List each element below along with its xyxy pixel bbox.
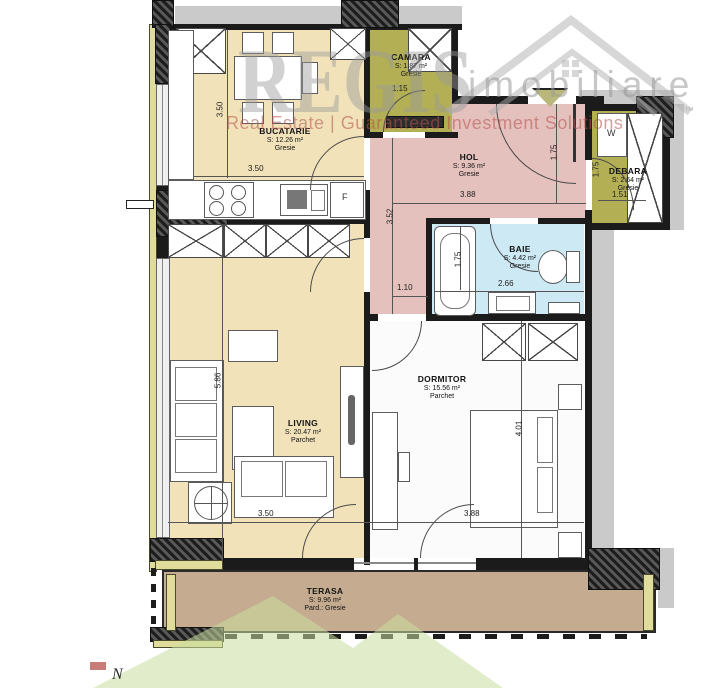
hatch-terrace-left	[150, 538, 224, 562]
stove-burner	[209, 185, 224, 200]
wall-bottom-right	[476, 558, 592, 570]
nightstand	[558, 532, 582, 558]
wall-dorm-top-left	[370, 314, 378, 321]
room-name: DEBARA	[592, 166, 664, 177]
olive-terrace-inner-left	[166, 574, 176, 631]
room-area: S: 9.36 m²	[424, 163, 514, 172]
hall-wardrobe-xbox	[168, 224, 224, 258]
pipe-stub	[126, 200, 154, 209]
terrace-railing-left	[151, 568, 156, 626]
north-indicator: N	[112, 666, 123, 684]
dim-living-v: 5.86	[213, 373, 222, 389]
kitchen-chair	[272, 102, 294, 124]
wall-bottom-left	[222, 558, 354, 570]
dim-kitchen-h: 3.50	[248, 164, 264, 173]
sink-basin	[496, 296, 530, 311]
dim-line	[194, 176, 364, 177]
wall-baie-left	[426, 224, 432, 320]
hatch-top-center	[341, 0, 399, 28]
entrance-door-leaf	[573, 104, 576, 162]
dim-line	[227, 30, 228, 178]
pillow	[537, 467, 553, 513]
kitchen-cabinet-xbox	[330, 28, 366, 60]
dim-line	[521, 321, 522, 558]
room-name: LIVING	[258, 418, 348, 429]
room-label-dormitor: DORMITOR S: 15.56 m² Parchet	[392, 374, 492, 402]
dim-hol-pass: 1.10	[397, 283, 413, 292]
fridge-label: F	[342, 192, 348, 202]
room-floor-type: Parchet	[392, 393, 492, 402]
dim-line	[392, 296, 428, 297]
exterior-strip-bottom-right	[658, 548, 674, 608]
room-floor-type: Gresie	[482, 263, 558, 272]
dorm-wardrobe-xbox	[482, 323, 526, 361]
room-area: S: 12.26 m²	[230, 137, 340, 146]
tv-icon	[348, 395, 355, 445]
dim-kitchen-v: 3.50	[215, 102, 224, 118]
wall-bottom-mullion	[414, 558, 418, 570]
dim-line	[392, 138, 393, 314]
hall-wardrobe-xbox	[224, 224, 266, 258]
kitchen-table	[234, 56, 302, 100]
terrace-railing	[225, 634, 647, 639]
dim-baie-v: 1.75	[453, 252, 462, 268]
wall-spine-lower	[364, 292, 370, 565]
room-floor-type: Gresie	[230, 145, 340, 154]
dorm-wardrobe-xbox	[528, 323, 578, 361]
bath-mat	[548, 302, 580, 314]
wall-spine-upper	[364, 224, 370, 238]
dim-hol-v: 3.52	[385, 209, 394, 225]
dim-line	[434, 291, 584, 292]
room-label-terasa: TERASA S: 9.96 m² Pard.: Gresie	[270, 586, 380, 614]
kitchen-chair	[242, 102, 264, 124]
stove-burner	[209, 201, 224, 216]
dim-dorm-w: 3.88	[464, 509, 480, 518]
wall-baie-top-right	[538, 218, 590, 224]
room-area: S: 2.64 m²	[592, 177, 664, 186]
sofa-cushion	[175, 367, 217, 401]
room-label-debara: DEBARA S: 2.64 m² Gresie	[592, 166, 664, 194]
living-bench	[228, 330, 278, 362]
stove-burner	[231, 185, 246, 200]
stove-burner	[231, 201, 246, 216]
wall-east-lower	[585, 210, 592, 570]
wall-baie-top-left	[426, 218, 490, 224]
sink-drainer	[311, 190, 325, 211]
dim-dorm-v: 4.01	[514, 421, 523, 437]
room-name: HOL	[424, 152, 514, 163]
olive-terrace-inner-right	[643, 574, 654, 631]
exterior-strip-east	[591, 230, 614, 548]
bathroom-sink	[488, 292, 536, 314]
hol-floor-corridor	[370, 218, 426, 314]
exterior-strip-top	[175, 6, 462, 24]
wall-hol-top-left	[452, 96, 528, 104]
desk	[372, 412, 398, 530]
room-floor-type: Pard.: Gresie	[270, 605, 380, 614]
sink-basin	[287, 190, 307, 209]
watermark-tm: ™	[684, 106, 694, 117]
loveseat-cushion	[285, 461, 327, 497]
hall-wardrobe-xbox	[266, 224, 308, 258]
room-name: CAMARA	[370, 52, 452, 63]
floor-plan: F W	[0, 0, 701, 688]
wall-debara-bottom	[585, 223, 670, 230]
wall-hol-top-right	[576, 96, 604, 104]
dim-hol-entry: 1.75	[549, 145, 558, 161]
desk-chair	[398, 452, 410, 482]
room-label-living: LIVING S: 20.47 m² Parchet	[258, 418, 348, 446]
room-floor-type: Gresie	[592, 185, 664, 194]
room-area: S: 4.42 m²	[482, 255, 558, 264]
pillow	[537, 417, 553, 463]
living-window	[156, 258, 170, 538]
room-area: S: 9.96 m²	[270, 597, 380, 606]
threshold-dormitor	[418, 562, 476, 564]
room-label-hol: HOL S: 9.36 m² Gresie	[424, 152, 514, 180]
dim-camara-w: 1.15	[392, 84, 408, 93]
room-name: BUCATARIE	[230, 126, 340, 137]
threshold-living	[354, 562, 414, 564]
room-label-baie: BAIE S: 4.42 m² Gresie	[482, 244, 558, 272]
loveseat	[234, 456, 334, 518]
dim-hol-w: 3.88	[460, 190, 476, 199]
kitchen-chair	[242, 32, 264, 54]
room-area: S: 15.56 m²	[392, 385, 492, 394]
dim-living-w: 3.50	[258, 509, 274, 518]
dim-baie-w: 2.66	[498, 279, 514, 288]
room-name: TERASA	[270, 586, 380, 597]
room-floor-type: Gresie	[424, 171, 514, 180]
kitchen-tall-cabinet	[168, 30, 194, 180]
kitchen-chair	[302, 62, 318, 94]
sofa-cushion	[175, 439, 217, 473]
room-area: S: 20.47 m²	[258, 429, 348, 438]
room-floor-type: Gresie	[370, 71, 452, 80]
room-floor-type: Parchet	[258, 437, 348, 446]
room-label-camara: CAMARA S: 1.87 m² Gresie	[370, 52, 452, 80]
room-name: DORMITOR	[392, 374, 492, 385]
dim-line	[222, 226, 223, 556]
toilet-tank	[566, 251, 580, 283]
kitchen-chair	[272, 32, 294, 54]
stove	[204, 182, 254, 218]
terasa-floor	[162, 570, 656, 633]
dim-line	[392, 203, 586, 204]
wall-camara-bottom-right	[425, 132, 458, 138]
olive-terrace-left	[155, 560, 223, 570]
wall-camara-right	[452, 24, 458, 104]
bathtub-basin	[440, 233, 470, 309]
dim-line	[598, 200, 646, 201]
room-name: BAIE	[482, 244, 558, 255]
room-label-bucatarie: BUCATARIE S: 12.26 m² Gresie	[230, 126, 340, 154]
bathtub	[434, 226, 476, 316]
washer-label: W	[607, 128, 616, 138]
room-area: S: 1.87 m²	[370, 63, 452, 72]
loveseat-cushion	[241, 461, 283, 497]
olive-terrace-bottom-left	[153, 640, 223, 648]
wall-east-upper	[585, 104, 592, 160]
nightstand	[558, 384, 582, 410]
wall-camara-bottom-left	[364, 132, 383, 138]
sofa-cushion	[175, 403, 217, 437]
